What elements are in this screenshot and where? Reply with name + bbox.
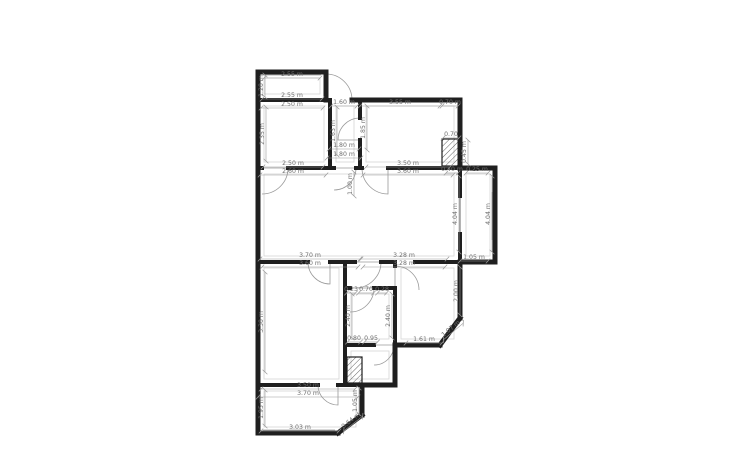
dimension-label: 0.64 m — [340, 411, 361, 430]
dimension-label: 3.60 m — [299, 260, 321, 267]
floor-plan-page: 2.55 m2.55 m2.50 m1.60 m3.55 m0.70 m1.80… — [0, 0, 750, 450]
dimension-label: 1.20 m — [258, 75, 265, 97]
door-arc — [362, 168, 388, 194]
dimension-label: 2.00 m — [453, 280, 460, 302]
dimension-label: 1.60 m — [333, 99, 355, 106]
dimension: 2.40 m — [385, 292, 394, 340]
dimension-label: 0.70 — [444, 131, 458, 138]
dimension-label: 2.35 m — [259, 123, 266, 145]
dimension-label: 1.05 m — [463, 254, 485, 261]
dimension: 1.20 m — [258, 73, 267, 99]
dimension-label: 4.04 m — [485, 203, 492, 225]
room-guide — [264, 106, 324, 162]
floor-plan-canvas: 2.55 m2.55 m2.50 m1.60 m3.55 m0.70 m1.80… — [0, 0, 750, 450]
dimension-label: 1.63 m — [330, 120, 337, 142]
dimension-label: 1.80 m — [333, 142, 355, 149]
dimension: 1.60 m — [329, 99, 359, 108]
dimension-label: 3.55 m — [389, 99, 411, 106]
door-arc — [318, 385, 338, 405]
dimension-label: 4.04 m — [452, 203, 459, 225]
dimension-label: 1.00 m — [347, 173, 354, 195]
shaft-hatch — [347, 357, 362, 383]
dimension-label: 0.25 m — [466, 166, 488, 173]
dimension-label: 2.55 m — [281, 71, 303, 78]
dimension-label: 2.55 m — [281, 92, 303, 99]
door-arc — [395, 266, 419, 290]
dimension-label: 2.50 m — [282, 160, 304, 167]
dimension-label: 3.28 m — [393, 252, 415, 259]
dimension: 0.95 — [362, 335, 379, 344]
dimension-label: 3.70 m — [297, 390, 319, 397]
dimension-label: 2.60 m — [282, 168, 304, 175]
dimension-label: 3.50 m — [397, 160, 419, 167]
room-guide — [264, 174, 454, 256]
dimension-label: 0.70 m — [439, 99, 461, 106]
dimension-label: 3.60 m — [397, 168, 419, 175]
dimension-label: 3.28 m — [393, 260, 415, 267]
dimension-label: 3.50 m — [297, 382, 319, 389]
door-arc — [374, 345, 394, 365]
dimension-label: 2.40 m — [385, 305, 392, 327]
dimension-label: 2.50 m — [281, 101, 303, 108]
dimension: 3.70 m — [256, 390, 360, 399]
dimension-label: 3.03 m — [289, 424, 311, 431]
dimension-label: 3.70 m — [299, 252, 321, 259]
dimension-label: 0.28 — [375, 286, 389, 293]
shaft-hatch — [442, 139, 460, 166]
door-arc — [326, 74, 352, 100]
dimension-label: 1.05 m — [352, 390, 359, 412]
dimension-label: 0.45 m — [461, 141, 468, 163]
dimension-label: 1.95 m — [258, 397, 265, 419]
room-guide — [366, 106, 454, 162]
dimension-label: 0.23 — [344, 286, 358, 293]
dimension-label: 1.61 m — [413, 336, 435, 343]
door-arc — [338, 118, 360, 140]
dimension-label: 0.80 — [347, 335, 361, 342]
room-guide — [264, 268, 339, 379]
dimension-label: 0.40 m — [441, 166, 463, 173]
dimension-label: 0.95 — [364, 335, 378, 342]
dimension-label: 0.70 — [359, 286, 373, 293]
dimension-label: 3.30 m — [258, 311, 265, 333]
dimension-label: 1.85 m — [360, 117, 367, 139]
dimension: 0.45 m — [461, 138, 470, 166]
dimension-label: 2.40 m — [345, 305, 352, 327]
dimension-label: 1.07 m — [440, 319, 461, 338]
